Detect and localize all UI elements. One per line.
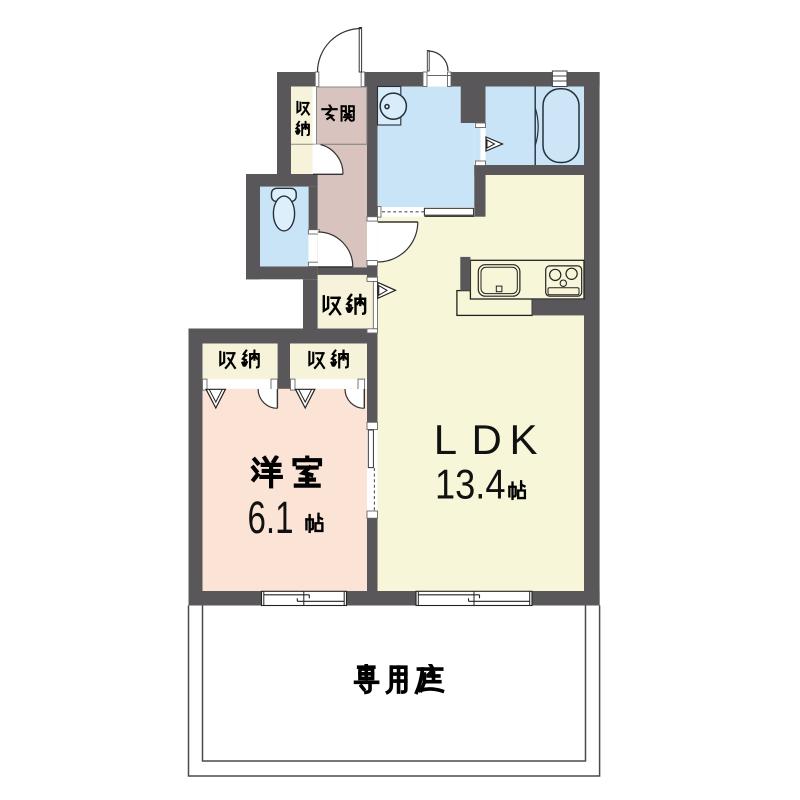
svg-text:13.4: 13.4 <box>435 461 506 508</box>
svg-text:6.1: 6.1 <box>248 492 294 543</box>
svg-text:D: D <box>472 416 502 463</box>
svg-text:K: K <box>510 416 538 463</box>
svg-text:L: L <box>434 416 457 463</box>
